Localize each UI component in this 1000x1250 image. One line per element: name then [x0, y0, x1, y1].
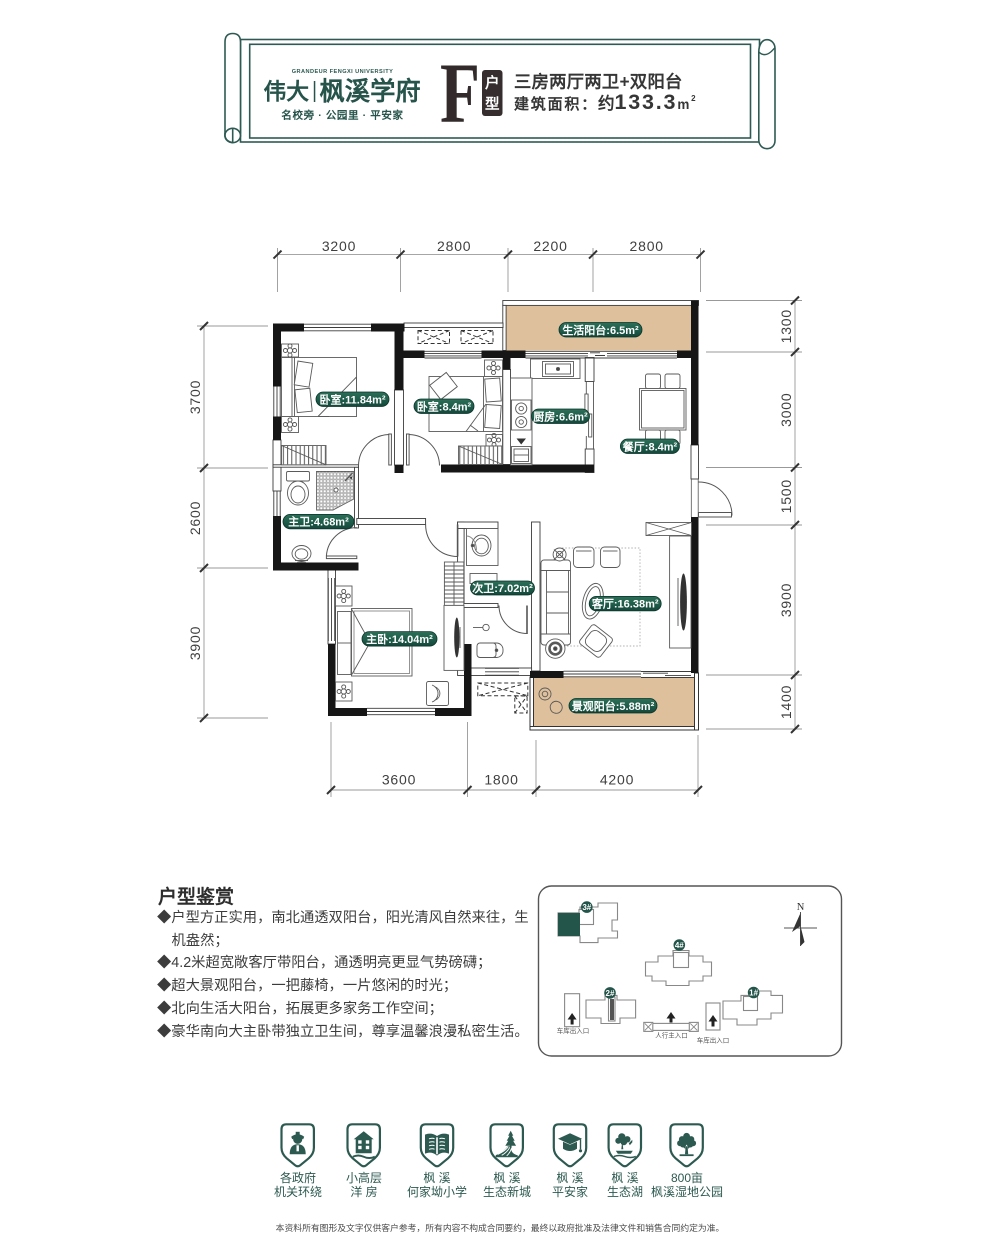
svg-text:主卧:14.04m²: 主卧:14.04m²	[366, 632, 433, 646]
svg-text:1300: 1300	[778, 309, 794, 343]
svg-text:卧室:8.4m²: 卧室:8.4m²	[417, 399, 472, 413]
svg-text:4#: 4#	[675, 941, 684, 950]
svg-text:N: N	[797, 902, 805, 913]
svg-text:1400: 1400	[778, 685, 794, 719]
svg-text:次卫:7.02m²: 次卫:7.02m²	[472, 581, 533, 595]
svg-text:伟大: 伟大	[264, 79, 310, 105]
svg-text:1#: 1#	[749, 988, 758, 997]
svg-text:3900: 3900	[187, 626, 203, 660]
svg-text:3200: 3200	[322, 238, 356, 254]
svg-text:1500: 1500	[778, 479, 794, 513]
svg-text:客厅:16.38m²: 客厅:16.38m²	[591, 597, 659, 611]
svg-text:2#: 2#	[606, 989, 615, 998]
svg-text:2600: 2600	[187, 501, 203, 535]
svg-text:3000: 3000	[778, 393, 794, 427]
svg-text:3700: 3700	[187, 380, 203, 414]
svg-text:2200: 2200	[533, 238, 567, 254]
svg-text:户: 户	[485, 74, 500, 92]
svg-text:3900: 3900	[778, 583, 794, 617]
svg-text:三房两厅两卫+双阳台: 三房两厅两卫+双阳台	[514, 72, 683, 92]
svg-text:车库出入口: 车库出入口	[557, 1026, 590, 1035]
svg-text:景观阳台:5.88m²: 景观阳台:5.88m²	[571, 699, 655, 713]
svg-text:卧室:11.84m²: 卧室:11.84m²	[319, 392, 385, 406]
svg-text:主卫:4.68m²: 主卫:4.68m²	[288, 515, 349, 529]
svg-text:名校旁 · 公园里 · 平安家: 名校旁 · 公园里 · 平安家	[281, 108, 403, 121]
svg-text:2800: 2800	[630, 238, 664, 254]
svg-text:人行主入口: 人行主入口	[655, 1031, 688, 1040]
svg-text:GRANDEUR FENGXI UNIVERSITY: GRANDEUR FENGXI UNIVERSITY	[292, 69, 394, 75]
svg-text:生活阳台:6.5m²: 生活阳台:6.5m²	[562, 323, 639, 337]
svg-text:枫溪学府: 枫溪学府	[320, 77, 421, 106]
svg-text:餐厅:8.4m²: 餐厅:8.4m²	[622, 439, 678, 453]
svg-text:F: F	[440, 45, 480, 141]
svg-text:3600: 3600	[382, 772, 416, 788]
svg-text:1800: 1800	[484, 772, 518, 788]
svg-text:车库出入口: 车库出入口	[697, 1036, 730, 1045]
svg-text:厨房:6.6m²: 厨房:6.6m²	[533, 409, 588, 423]
svg-text:型: 型	[485, 95, 500, 113]
svg-text:4200: 4200	[600, 772, 634, 788]
svg-text:2800: 2800	[437, 238, 471, 254]
svg-text:3#: 3#	[582, 903, 591, 912]
